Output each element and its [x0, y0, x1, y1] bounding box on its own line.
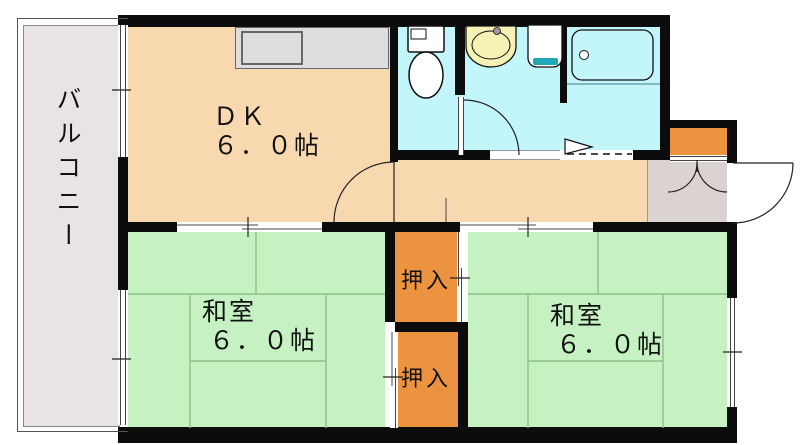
bath-threshold: [567, 150, 633, 160]
bath-floor: [567, 27, 660, 155]
bath-doorgap-floor: [560, 103, 567, 150]
wall-entrance-right: [727, 128, 737, 163]
closet-top-label: 押入: [391, 266, 461, 295]
wall-mid-center: [322, 222, 460, 232]
wall-toilet-right: [455, 27, 465, 95]
wall-closet-mid: [395, 322, 468, 332]
closet-bottom-label: 押入: [391, 364, 461, 393]
wall-mid-right: [593, 222, 737, 232]
floor-plan: バルコニー ＤＫ ６．０帖 和室 ６．０帖 和室 ６．０帖 押入 押入: [0, 0, 800, 445]
washitsu-right-size: ６．０帖: [550, 331, 664, 360]
dk-label: ＤＫ ６．０帖: [213, 103, 321, 161]
balcony-label: バルコニー: [52, 86, 81, 256]
washroom-floor: [465, 27, 560, 150]
washitsu-left-name: 和室: [202, 298, 317, 327]
washitsu-right-label: 和室 ６．０帖: [550, 302, 664, 360]
window-dk-balcony: [118, 25, 128, 157]
wall-right-lower: [727, 407, 737, 427]
entrance-door-gap: [727, 163, 737, 222]
wall-wash-bath: [560, 27, 567, 103]
wall-sanitary-bottom-right: [633, 150, 670, 160]
shoe-cabinet-track: [670, 155, 727, 162]
wall-mid-left: [118, 222, 177, 232]
washitsu-left-size: ６．０帖: [202, 327, 317, 356]
wall-top: [118, 15, 670, 27]
wall-right-upper: [727, 222, 737, 298]
wall-bottom: [118, 427, 737, 443]
washroom-door-leaf: [458, 97, 464, 155]
kitchen-sink: [241, 31, 303, 65]
entrance-door-arc: [733, 163, 793, 223]
shoe-cabinet: [670, 128, 727, 155]
wall-entrance-top: [665, 120, 737, 128]
window-washitsu-left: [118, 290, 128, 425]
wall-toilet-left: [390, 27, 398, 162]
washitsu-right-name: 和室: [550, 302, 664, 331]
washroom-threshold: [490, 150, 560, 160]
window-washitsu-right: [728, 298, 737, 407]
sliding-door-hall-washitsu: [460, 222, 593, 232]
wall-sanitary-bottom-left: [390, 150, 490, 160]
genkan-floor: [647, 160, 728, 222]
sliding-door-dk-washitsu: [177, 222, 322, 232]
dk-name: ＤＫ: [213, 103, 321, 132]
washitsu-left-label: 和室 ６．０帖: [202, 298, 317, 356]
kitchen-counter: [235, 27, 389, 69]
hallway-floor: [390, 160, 647, 222]
toilet-floor: [398, 27, 455, 150]
dk-size: ６．０帖: [213, 132, 321, 161]
wall-bath-right: [660, 15, 670, 158]
